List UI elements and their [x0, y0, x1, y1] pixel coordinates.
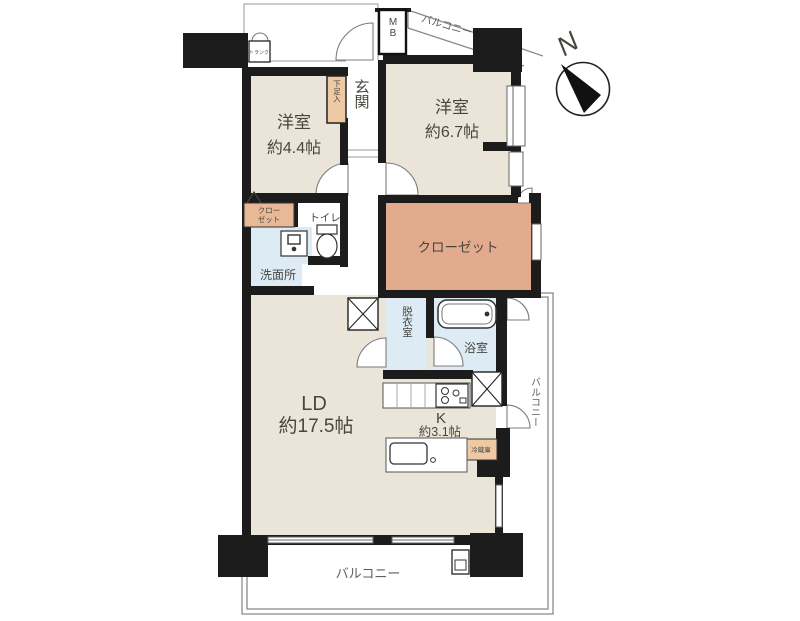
pillar-top-left [183, 33, 248, 68]
washroom-label: 洗面所 [260, 268, 296, 282]
toilet-tank [317, 225, 337, 234]
west-room1-name: 洋室 [277, 113, 311, 132]
wall-washroom-bottom [242, 286, 314, 295]
wall-room1-top [242, 67, 348, 76]
window-closet-right [532, 224, 541, 260]
kitchen-sink [390, 443, 427, 464]
vanity-drain-dot [292, 247, 297, 252]
dressing-label: 脱衣室 [401, 305, 413, 337]
compass-north-label: N [551, 26, 584, 62]
pillar-bottom-right [470, 533, 523, 577]
wall-kitchen-right-lower [496, 428, 510, 453]
wall-room2-left-upper [378, 60, 386, 163]
bath-label: 浴室 [464, 340, 488, 355]
floor-plan-drawing: N 洋室 約4.4帖 洋室 約6.7帖 LD 約17.5帖 K 約3.1帖 クロ… [0, 0, 800, 621]
living-area: 約17.5帖 [279, 415, 354, 437]
wall-kitchen-top [383, 370, 473, 379]
toilet-label: トイレ [309, 212, 341, 224]
balcony-bottom-label: バルコニー [336, 566, 401, 581]
balcony-right-label: バルコニー [529, 377, 541, 427]
wall-room2-top [383, 55, 475, 64]
small-closet-label-1: クロー [258, 206, 281, 215]
wall-closet-bottom [378, 290, 541, 298]
floor-plan-page: N 洋室 約4.4帖 洋室 約6.7帖 LD 約17.5帖 K 約3.1帖 クロ… [0, 0, 800, 621]
vanity-sink [288, 235, 300, 244]
small-closet-label-2: ゼット [258, 214, 281, 224]
west-room2-area: 約6.7帖 [425, 123, 479, 141]
bathtub-faucet-dot [485, 312, 490, 317]
window-room2-lower [509, 152, 523, 186]
living-name: LD [301, 393, 327, 415]
kitchen-area: 約3.1帖 [419, 424, 461, 439]
shoe-cabinet-label: 下足入 [332, 80, 341, 103]
wall-bath-right [496, 290, 507, 377]
wall-toilet-right [340, 193, 348, 267]
wall-left [242, 67, 251, 543]
pillar-bottom-left [218, 535, 268, 577]
meter-box-label: MB [388, 17, 399, 39]
entrance-label: 玄関 [353, 79, 370, 110]
compass: N [551, 26, 609, 116]
toilet-bowl [317, 234, 337, 258]
balcony-door-swing-kitchen [507, 405, 530, 428]
trunk-label: トランク [249, 50, 269, 56]
wall-hall-left-upper [340, 118, 348, 165]
west-room2-name: 洋室 [435, 98, 469, 117]
wall-closet-left [378, 195, 386, 298]
wall-closet-top [386, 195, 518, 203]
balcony-door-swing-upper [507, 298, 529, 320]
fridge-label: 冷蔵庫 [471, 445, 491, 454]
walkin-closet-label: クローゼット [418, 240, 499, 255]
window-dining-right [496, 485, 502, 527]
wall-bath-divider [426, 298, 434, 338]
window-room2-upper [507, 86, 525, 146]
stove [436, 384, 468, 407]
west-room1-area: 約4.4帖 [267, 139, 321, 157]
